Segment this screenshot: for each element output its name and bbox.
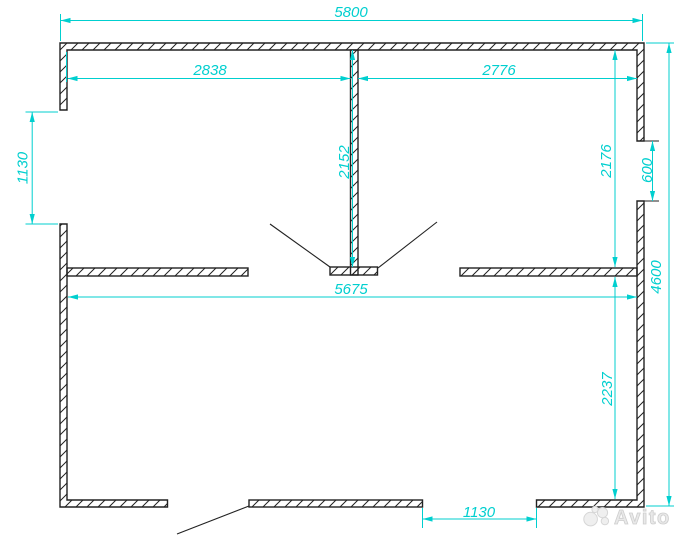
svg-text:600: 600 (639, 157, 656, 183)
svg-text:2176: 2176 (598, 144, 615, 179)
svg-text:2838: 2838 (192, 62, 227, 79)
svg-text:5675: 5675 (334, 281, 368, 298)
svg-text:2237: 2237 (599, 372, 616, 407)
svg-text:1130: 1130 (15, 151, 32, 184)
svg-text:Avito: Avito (614, 507, 671, 529)
svg-text:2776: 2776 (481, 62, 516, 79)
svg-text:1130: 1130 (463, 504, 496, 521)
svg-text:2152: 2152 (336, 145, 353, 180)
svg-text:5800: 5800 (334, 4, 368, 21)
svg-text:4600: 4600 (648, 260, 665, 294)
